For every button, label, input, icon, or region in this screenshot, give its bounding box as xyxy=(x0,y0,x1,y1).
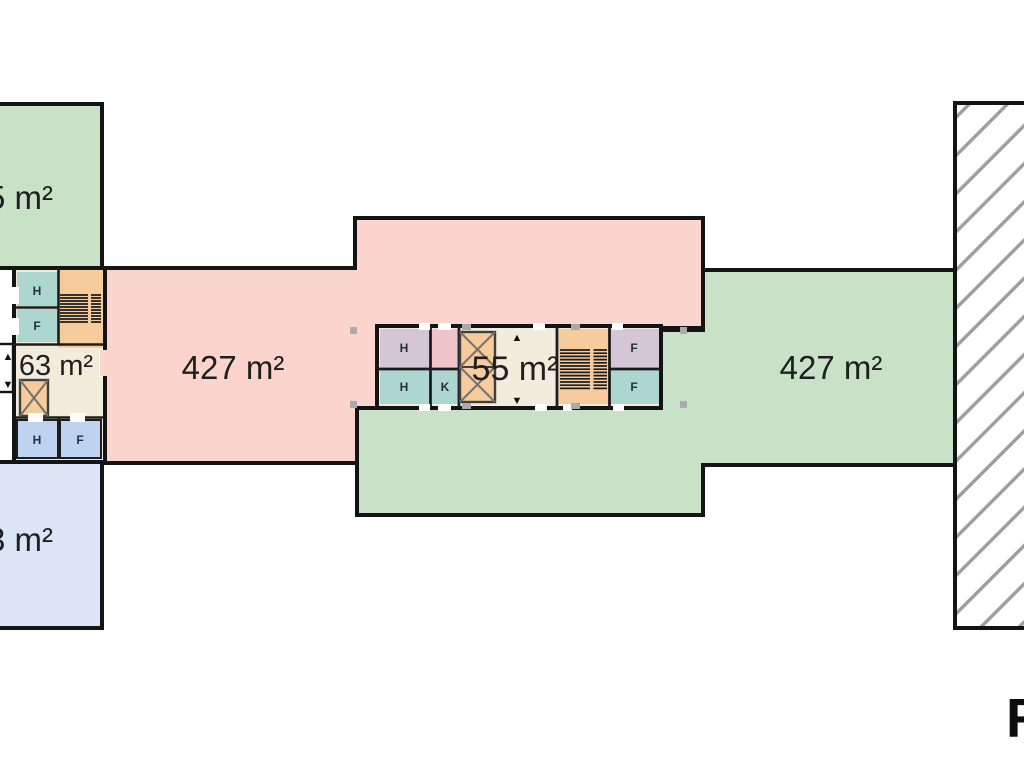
floor-plan-canvas: ▲ ▼ 5 m² 3 m² 63 m² H F H F xyxy=(0,0,1024,768)
down-arrow-icon: ▼ xyxy=(512,395,523,407)
down-arrow-icon: ▼ xyxy=(3,379,14,391)
room-label: H xyxy=(33,284,42,298)
center-core-area-label: 55 m² xyxy=(472,350,559,388)
room-label: F xyxy=(76,433,83,447)
left-wing-area-label: 427 m² xyxy=(182,349,285,386)
room-label: H xyxy=(400,380,409,394)
watermark-text: R xyxy=(1006,687,1024,749)
room-label: F xyxy=(630,380,637,394)
selection-handle[interactable] xyxy=(350,327,357,334)
center-room-small[interactable] xyxy=(432,329,459,368)
left-stairs-icon xyxy=(58,270,103,348)
corridor-door-gap xyxy=(100,350,110,376)
existing-building-hatched[interactable] xyxy=(955,103,1024,628)
left-shaft-indicator: ▲ ▼ xyxy=(0,344,13,392)
center-stairs-icon xyxy=(559,329,608,404)
top-left-area-label: 5 m² xyxy=(0,179,53,216)
left-elevator-icon xyxy=(20,380,48,416)
room-label: H xyxy=(400,341,409,355)
selection-handle[interactable] xyxy=(680,401,687,408)
bottom-left-area-label: 3 m² xyxy=(0,521,53,558)
room-label: H xyxy=(33,433,42,447)
room-label: F xyxy=(630,341,637,355)
center-core[interactable]: ▲ ▼ 55 m² H H K F F xyxy=(377,323,661,411)
left-core-area-label: 63 m² xyxy=(19,350,93,382)
selection-handle[interactable] xyxy=(680,327,687,334)
up-arrow-icon: ▲ xyxy=(512,332,523,344)
right-wing-area-label: 427 m² xyxy=(780,349,883,386)
room-label: K xyxy=(441,380,450,394)
left-building: ▲ ▼ 5 m² 3 m² 63 m² H F H F xyxy=(0,104,110,628)
floor-plan: ▲ ▼ 5 m² 3 m² 63 m² H F H F xyxy=(0,0,1024,768)
up-arrow-icon: ▲ xyxy=(3,351,14,363)
room-label: F xyxy=(33,319,40,333)
selection-handle[interactable] xyxy=(350,401,357,408)
